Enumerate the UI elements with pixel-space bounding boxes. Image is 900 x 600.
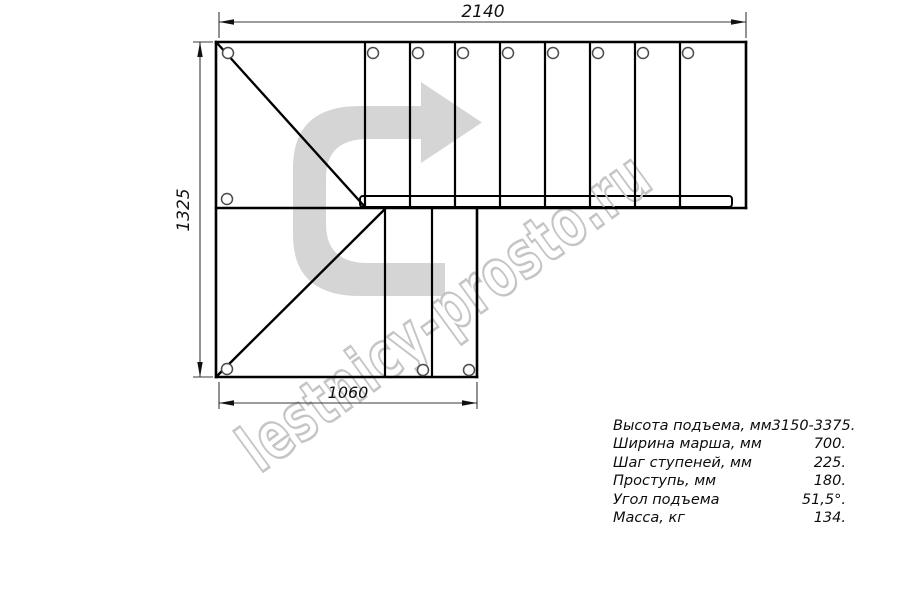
dimension-left-label: 1325 bbox=[174, 188, 194, 231]
spec-value: 51,5°. bbox=[802, 491, 846, 509]
spec-row-tread-depth: Проступь, мм 180. bbox=[613, 472, 846, 490]
spec-label: Шаг ступеней, мм bbox=[613, 454, 752, 472]
spec-value: 180. bbox=[814, 472, 846, 490]
spec-value: 3150-3375. bbox=[772, 417, 856, 435]
dimension-top-2140: 2140 bbox=[219, 2, 746, 38]
spec-value: 700. bbox=[814, 435, 846, 453]
spec-row-height: Высота подъема, мм 3150-3375. bbox=[613, 417, 846, 435]
spec-row-climb-angle: Угол подъема 51,5°. bbox=[613, 491, 846, 509]
spec-row-mass: Масса, кг 134. bbox=[613, 509, 846, 527]
spec-row-step-pitch: Шаг ступеней, мм 225. bbox=[613, 454, 846, 472]
dimension-top-label: 2140 bbox=[461, 2, 504, 22]
spec-value: 225. bbox=[814, 454, 846, 472]
watermark-text: lestnicy-prosto.ru bbox=[224, 137, 666, 487]
spec-label: Ширина марша, мм bbox=[613, 435, 762, 453]
spec-label: Высота подъема, мм bbox=[613, 417, 772, 435]
spec-label: Проступь, мм bbox=[613, 472, 716, 490]
spec-value: 134. bbox=[814, 509, 846, 527]
spec-label: Угол подъема bbox=[613, 491, 720, 509]
staircase-drawing-page: lestnicy-prosto.ru bbox=[0, 0, 900, 600]
dimension-bottom-label: 1060 bbox=[328, 383, 369, 402]
spec-label: Масса, кг bbox=[613, 509, 685, 527]
spec-table: Высота подъема, мм 3150-3375. Ширина мар… bbox=[613, 417, 846, 527]
spec-row-flight-width: Ширина марша, мм 700. bbox=[613, 435, 846, 453]
dimension-left-1325: 1325 bbox=[174, 42, 213, 377]
